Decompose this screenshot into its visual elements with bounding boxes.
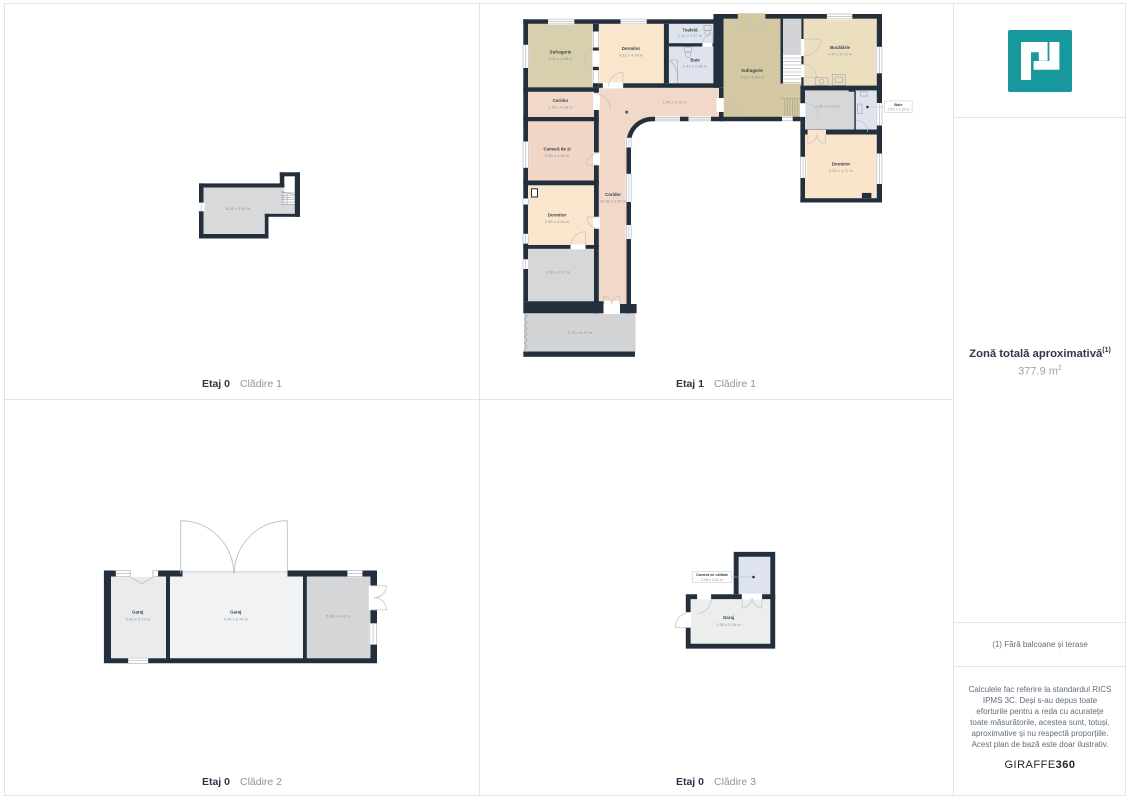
svg-text:Sufragerie: Sufragerie [550,50,572,55]
svg-text:Coridor: Coridor [605,192,621,197]
svg-text:2.70 x 6.77 m: 2.70 x 6.77 m [568,330,593,335]
svg-text:Dormitor: Dormitor [622,46,641,51]
svg-text:Garaj: Garaj [230,610,241,615]
svg-text:Baie: Baie [690,58,700,63]
svg-text:3.50 x 4.27 m: 3.50 x 4.27 m [546,270,571,275]
svg-text:Bucătărie: Bucătărie [830,45,851,50]
svg-text:1.66 x 4.28 m: 1.66 x 4.28 m [548,105,573,110]
svg-text:4.12 x 4.14 m: 4.12 x 4.14 m [619,53,644,58]
svg-text:1.31 x 2.97 m: 1.31 x 2.97 m [678,33,703,38]
svg-text:3.85 x 4.24 m: 3.85 x 4.24 m [545,219,570,224]
svg-text:3.83 x 4.24 m: 3.83 x 4.24 m [545,153,570,158]
svg-text:5.62 x 3.89 m: 5.62 x 3.89 m [740,75,765,80]
svg-text:Coridor: Coridor [553,98,569,103]
svg-text:13.98 x 1.87 m: 13.98 x 1.87 m [600,199,627,204]
svg-text:4.00 x 4.77 m: 4.00 x 4.77 m [829,168,854,173]
svg-text:Garaj: Garaj [723,615,734,620]
svg-text:4.47 x 4.79 m: 4.47 x 4.79 m [828,52,853,57]
svg-text:Sufragerie: Sufragerie [741,68,763,73]
svg-text:4.11 x 4.58 m: 4.11 x 4.58 m [549,56,574,61]
svg-text:Baie: Baie [894,102,903,107]
svg-text:Toaletă: Toaletă [682,28,698,33]
svg-text:Cameră de zi: Cameră de zi [543,147,570,152]
svg-text:5.40 x 6.74 m: 5.40 x 6.74 m [224,617,249,622]
svg-text:8.15 x 5.50 m: 8.15 x 5.50 m [226,206,251,211]
svg-text:2.08 x 2.02 m: 2.08 x 2.02 m [701,578,723,582]
svg-text:Dormitor: Dormitor [832,162,851,167]
svg-text:Garaj: Garaj [132,610,143,615]
svg-text:2.47 x 2.88 m: 2.47 x 2.88 m [683,64,708,69]
svg-text:Cameră de utilitate: Cameră de utilitate [696,573,728,577]
svg-text:1.94 x 3.73 m: 1.94 x 3.73 m [662,100,687,105]
svg-text:3.55 x 5.19 m: 3.55 x 5.19 m [716,622,741,627]
svg-text:Dormitor: Dormitor [548,213,567,218]
svg-text:5.38 x 4.42 m: 5.38 x 4.42 m [326,614,351,619]
svg-text:5.60 x 3.73 m: 5.60 x 3.73 m [126,617,151,622]
svg-text:2.60 x 3.21 m: 2.60 x 3.21 m [815,104,840,109]
svg-text:2.87 x 1.39 m: 2.87 x 1.39 m [888,108,910,112]
